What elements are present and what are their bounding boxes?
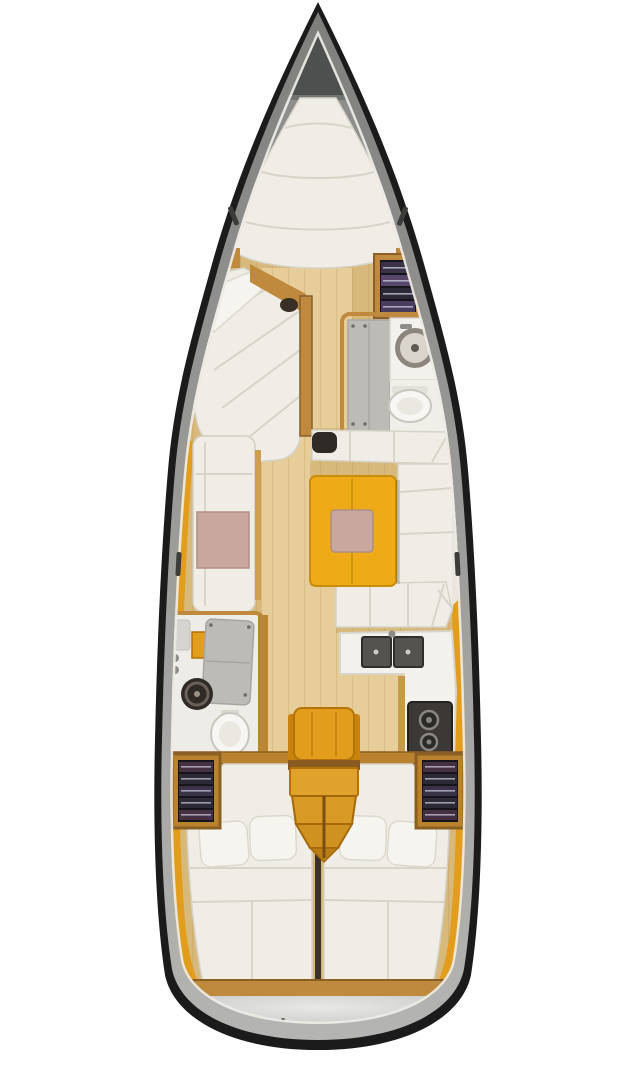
yacht-floorplan-page: Sailing yacht interior floor plan — top-… (0, 0, 636, 1080)
salon-port-settee: Salon port settee (193, 436, 261, 612)
starboard-locker: Starboard shelf locker (416, 754, 464, 828)
locker-arch (280, 298, 298, 312)
settee-wood-edge (255, 450, 261, 600)
aft-head-wood-wall (258, 615, 268, 762)
locker-shelf-stack (179, 762, 213, 820)
aft-head: Aft head — shower, washbasin and toilet (163, 613, 268, 762)
galley-faucet (389, 631, 396, 638)
toilet (389, 386, 431, 422)
locker-shelf-stack (423, 762, 457, 820)
port-locker: Port shelf locker (172, 754, 220, 828)
aft-washbasin (181, 678, 213, 710)
pillow (249, 815, 297, 861)
yacht-floorplan: Sailing yacht interior floor plan — top-… (0, 0, 636, 1080)
galley-sink-right (394, 637, 423, 667)
galley-stove (408, 702, 452, 754)
mast-step: Mast step (312, 432, 337, 453)
salon-table: Salon table (310, 476, 400, 586)
table-inlay (331, 510, 373, 552)
settee-cushion-pink (197, 512, 249, 568)
galley-sink-left (362, 637, 391, 667)
